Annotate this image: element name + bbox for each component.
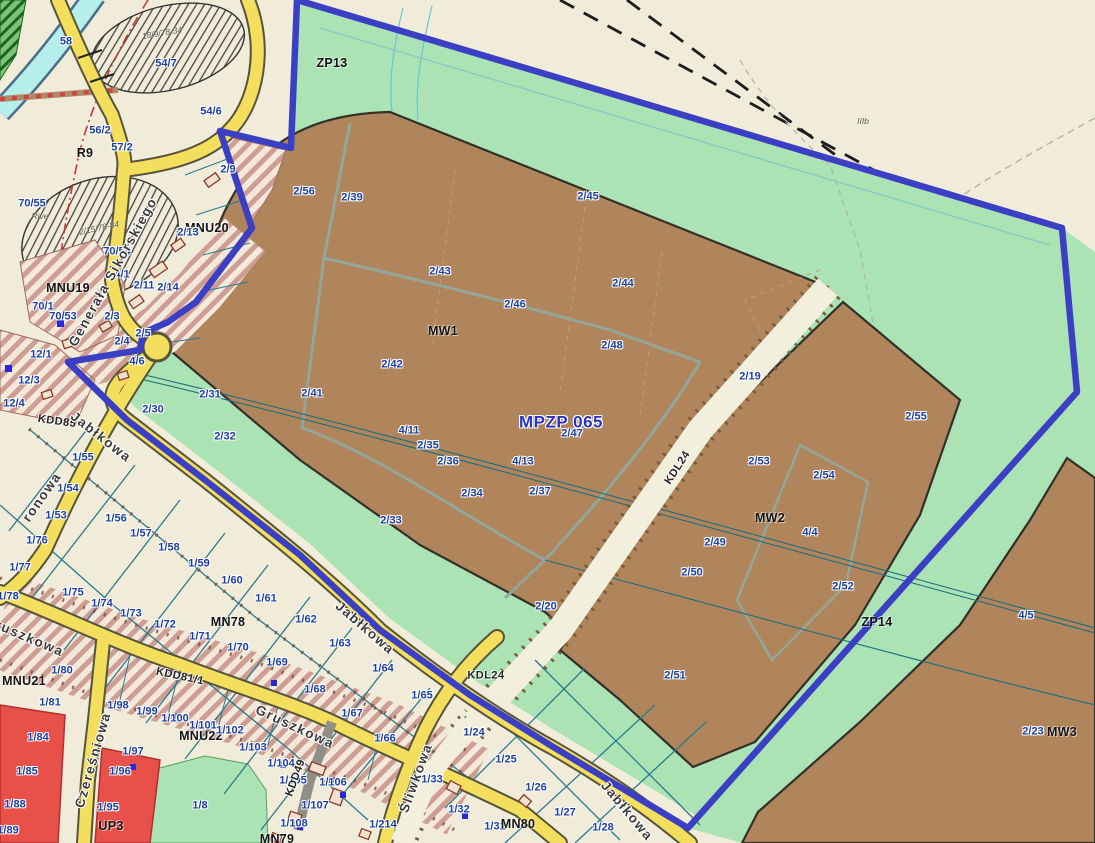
zone-green-1-8 [148, 756, 268, 843]
map-canvas [0, 0, 1095, 843]
zoning-map: 5854/718/9/78-3454/656/257/2R92/970/55Ri… [0, 0, 1095, 843]
